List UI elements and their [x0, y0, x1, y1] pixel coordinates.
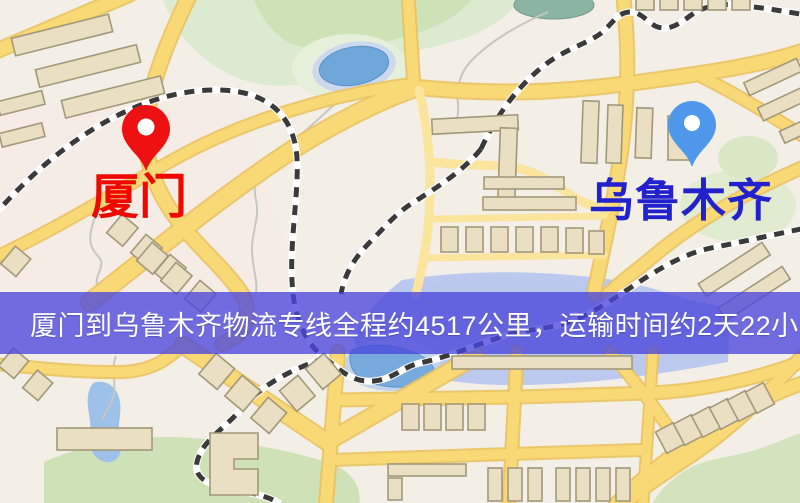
- map-background: [0, 0, 800, 503]
- destination-pin-icon: [667, 100, 717, 170]
- logistics-route-map: 厦门 乌鲁木齐 厦门到乌鲁木齐物流专线全程约4517公里，运输时间约2天22小时…: [0, 0, 800, 503]
- route-info-text: 厦门到乌鲁木齐物流专线全程约4517公里，运输时间约2天22小时.: [0, 304, 800, 343]
- origin-pin-icon: [121, 104, 171, 174]
- destination-label: 乌鲁木齐: [589, 178, 773, 223]
- route-info-banner: 厦门到乌鲁木齐物流专线全程约4517公里，运输时间约2天22小时.: [0, 292, 800, 354]
- origin-label: 厦门: [91, 174, 187, 222]
